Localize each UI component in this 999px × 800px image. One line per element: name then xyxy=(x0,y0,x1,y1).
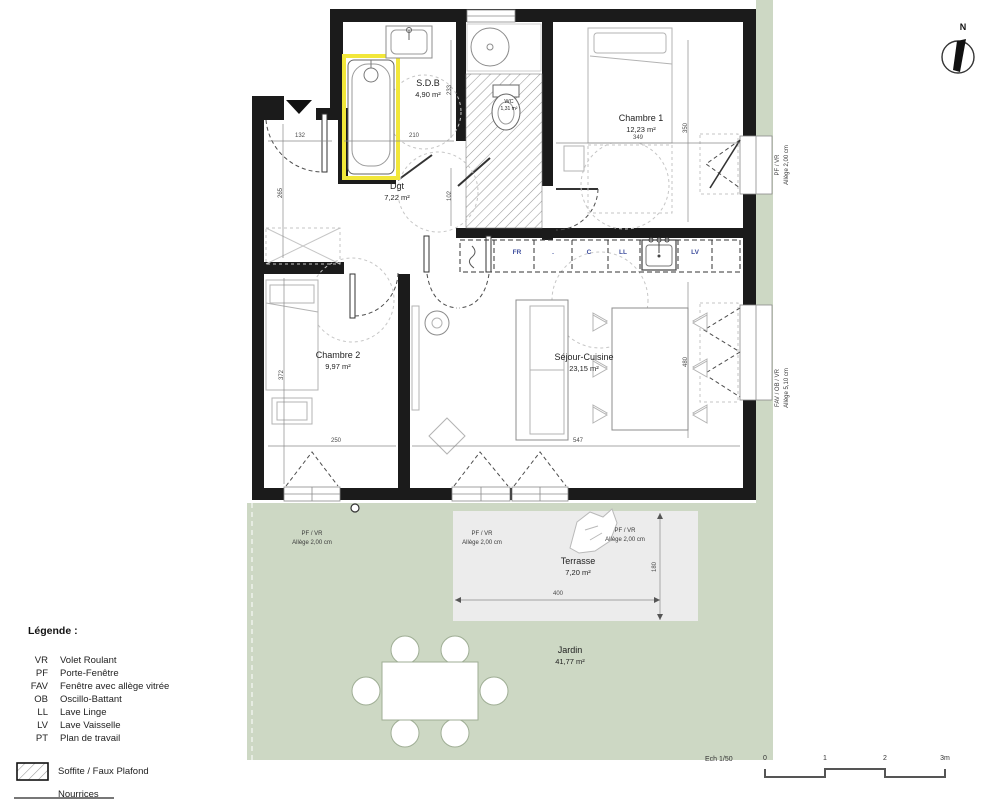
room-label-sdb: S.D.B 4,90 m² xyxy=(415,78,440,99)
side-table xyxy=(425,311,449,335)
dim-ch2-width: 250 xyxy=(331,438,341,444)
room-label-dgt: Dgt 7,22 m² xyxy=(384,181,409,202)
legend-item-lv: LVLave Vaisselle xyxy=(10,720,310,731)
room-label-wc: WC 1,31 m² xyxy=(501,99,518,113)
tall-unit-symbol xyxy=(469,246,475,268)
legend-item-ll: LLLave Linge xyxy=(10,707,310,718)
dim-sdb-height: 233 xyxy=(447,85,453,95)
window-label-right-bottom: FAV / OB / VRAllège 5,10 cm xyxy=(774,368,792,408)
window-label-terrace-left: PF / VRAllège 2,00 cm xyxy=(462,530,502,548)
north-compass-icon xyxy=(942,39,974,73)
legend-item-fav: FAVFenêtre avec allège vitrée xyxy=(10,681,310,692)
scale-label: Ech 1/50 xyxy=(705,756,733,763)
bathtub xyxy=(344,56,398,178)
bed-chambre2 xyxy=(266,280,318,424)
legend-item-pf: PFPorte-Fenêtre xyxy=(10,668,310,679)
legend-item-ob: OBOscillo-Battant xyxy=(10,694,310,705)
entry-closet xyxy=(266,228,340,264)
scale-tick-0: 0 xyxy=(763,755,767,762)
scale-tick-1: 1 xyxy=(823,755,827,762)
legend-soffite: Soffite / Faux Plafond xyxy=(58,766,149,777)
legend-divider xyxy=(14,797,114,799)
dim-wc-height: 102 xyxy=(447,191,453,201)
dim-terrasse-width: 400 xyxy=(553,591,563,597)
room-label-sejour: Séjour-Cuisine 23,15 m² xyxy=(554,352,613,373)
soffit-hatch-icon xyxy=(16,762,50,782)
washbasin xyxy=(386,26,432,58)
north-label: N xyxy=(960,22,967,32)
scale-tick-2: 2 xyxy=(883,755,887,762)
kitchen-label-c: C xyxy=(587,249,592,256)
room-label-terrasse: Terrasse 7,20 m² xyxy=(561,556,596,577)
dim-sejour-height: 480 xyxy=(683,357,689,367)
water-heater xyxy=(467,24,541,71)
scale-bar xyxy=(765,769,945,777)
tv-sideboard xyxy=(412,306,419,410)
kitchen-label-lv: LV xyxy=(691,249,699,256)
window-label-right-top: PF / VRAllège 2,00 cm xyxy=(774,145,792,185)
floor-plan-drawing xyxy=(0,0,999,800)
dim-entry-width: 132 xyxy=(295,133,305,139)
scale-tick-3m: 3m xyxy=(940,755,950,762)
room-label-chambre1: Chambre 1 12,23 m² xyxy=(619,113,664,134)
green-strip-right xyxy=(756,0,773,503)
kitchen-label-ll: LL xyxy=(619,249,627,256)
dim-entry-height: 265 xyxy=(278,188,284,198)
window-label-terrace-right: PF / VRAllège 2,00 cm xyxy=(605,527,645,545)
legend-item-vr: VRVolet Roulant xyxy=(10,655,310,666)
room-label-chambre2: Chambre 2 9,97 m² xyxy=(316,350,361,371)
kitchen-sink-icon xyxy=(642,238,676,270)
legend-title: Légende : xyxy=(28,625,78,637)
window-label-garden-left: PF / VRAllège 2,00 cm xyxy=(292,530,332,548)
pouf xyxy=(429,418,465,454)
kitchen-label-fr: FR xyxy=(513,249,522,256)
dim-ch1-height: 350 xyxy=(683,123,689,133)
room-label-jardin: Jardin 41,77 m² xyxy=(555,645,585,666)
dim-ch1-width: 349 xyxy=(633,135,643,141)
downspout-icon xyxy=(351,504,359,512)
legend-item-pt: PTPlan de travail xyxy=(10,733,310,744)
dim-sejour-width: 547 xyxy=(573,438,583,444)
entrance-marker-icon xyxy=(286,100,312,114)
dim-sdb-width: 210 xyxy=(409,133,419,139)
dim-ch2-height: 372 xyxy=(279,370,285,380)
kitchen-label-dot: . xyxy=(552,249,554,256)
dim-terrasse-height: 180 xyxy=(652,562,658,572)
floor-plan-page: S.D.B 4,90 m² WC 1,31 m² Chambre 1 12,23… xyxy=(0,0,999,800)
